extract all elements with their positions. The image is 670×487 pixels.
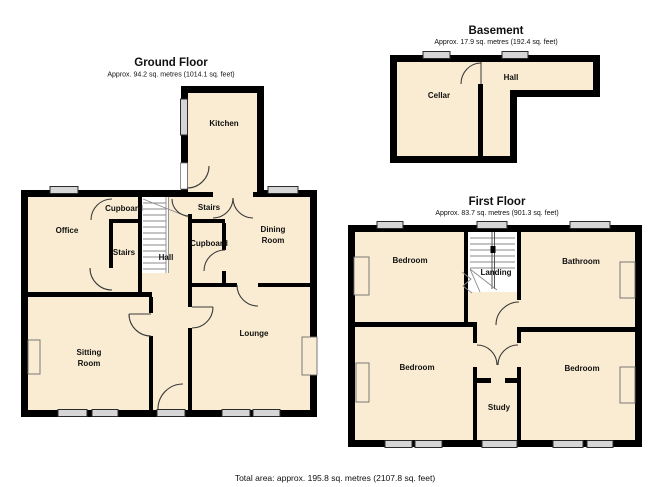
first-floor-area: Approx. 83.7 sq. metres (901.3 sq. feet) — [435, 210, 558, 217]
wall-segment — [505, 378, 521, 383]
window — [482, 441, 517, 448]
alcove — [354, 257, 369, 295]
front-door-threshold — [157, 410, 185, 417]
room-label-bedroom-top-left: Bedroom — [392, 256, 427, 265]
wall-segment — [464, 232, 468, 322]
wall-segment — [517, 332, 521, 343]
first-floor-plan: First Floor Approx. 83.7 sq. metres (901… — [348, 196, 642, 448]
ground-floor-plan: Ground Floor Approx. 94.2 sq. metres (10… — [21, 57, 317, 417]
wall-segment — [21, 292, 152, 297]
basement-area-fill — [397, 62, 593, 156]
room-label-bedroom-bottom-right: Bedroom — [564, 364, 599, 373]
room-label-office: Office — [56, 226, 79, 235]
room-label-kitchen: Kitchen — [209, 119, 238, 128]
wall-segment — [109, 219, 142, 223]
kitchen-side-door-gap — [181, 163, 188, 189]
basement-interior-walls — [478, 84, 483, 156]
wall-segment — [184, 192, 213, 197]
window — [423, 52, 450, 59]
first-floor-staircase — [462, 232, 517, 293]
alcove — [620, 262, 635, 298]
wall-segment — [258, 283, 317, 287]
window — [385, 441, 412, 448]
room-label-sitting-room: Sitting — [77, 348, 102, 357]
wall-segment — [188, 214, 192, 307]
floorplan-page: Ground Floor Approx. 94.2 sq. metres (10… — [0, 0, 670, 487]
room-label-basement-hall: Hall — [504, 73, 519, 82]
room-label-sitting-room: Room — [78, 359, 101, 368]
wall-segment — [192, 219, 225, 223]
floorplan-drawing: Ground Floor Approx. 94.2 sq. metres (10… — [0, 0, 670, 487]
window — [502, 52, 528, 59]
alcove — [356, 363, 369, 402]
window — [222, 410, 250, 417]
wall-segment — [352, 322, 477, 327]
room-label-bathroom: Bathroom — [562, 257, 600, 266]
room-label-cupboard-right: Cupboard — [190, 239, 228, 248]
room-label-cupboard-top: Cupboard — [105, 204, 143, 213]
room-label-hall: Hall — [159, 253, 174, 262]
basement-title: Basement — [469, 25, 524, 37]
basement-plan: Basement Approx. 17.9 sq. metres (192.4 … — [390, 25, 600, 163]
wall-segment — [149, 297, 153, 313]
window — [253, 410, 280, 417]
wall-segment — [192, 283, 237, 287]
stair-newel — [491, 246, 496, 253]
wall-segment — [473, 327, 477, 343]
alcove — [28, 340, 40, 374]
room-label-lounge: Lounge — [240, 329, 269, 338]
window — [377, 222, 403, 229]
wall-segment — [222, 271, 226, 283]
room-label-stairs-left: Stairs — [113, 248, 136, 257]
basement-area: Approx. 17.9 sq. metres (192.4 sq. feet) — [434, 39, 557, 46]
window — [92, 410, 118, 417]
window — [181, 99, 188, 135]
room-label-dining-room: Room — [262, 236, 285, 245]
room-label-cellar: Cellar — [428, 91, 450, 100]
window — [58, 410, 87, 417]
room-label-dining-room: Dining — [261, 225, 286, 234]
wall-segment — [517, 232, 521, 300]
room-label-bedroom-bottom-left: Bedroom — [399, 363, 434, 372]
wall-segment — [517, 327, 635, 332]
wall-segment — [473, 378, 491, 383]
wall-segment — [478, 84, 483, 156]
room-label-study: Study — [488, 403, 511, 412]
window — [268, 187, 298, 194]
window — [50, 187, 78, 194]
window — [415, 441, 442, 448]
window — [553, 441, 583, 448]
wall-segment — [149, 336, 153, 410]
ground-floor-area: Approx. 94.2 sq. metres (1014.1 sq. feet… — [107, 72, 234, 79]
room-label-landing: Landing — [480, 268, 511, 277]
wall-segment — [109, 223, 113, 268]
total-area-label: Total area: approx. 195.8 sq. metres (21… — [235, 473, 436, 483]
ground-floor-title: Ground Floor — [134, 57, 208, 69]
wall-segment — [473, 367, 477, 440]
alcove — [620, 367, 635, 403]
window — [477, 222, 507, 229]
wall-segment — [517, 367, 521, 440]
window — [587, 441, 613, 448]
wall-segment — [188, 328, 192, 410]
wall-segment — [253, 192, 264, 197]
room-label-stairs-right: Stairs — [198, 203, 221, 212]
alcove — [302, 337, 317, 375]
first-floor-title: First Floor — [469, 196, 526, 208]
window — [570, 222, 610, 229]
